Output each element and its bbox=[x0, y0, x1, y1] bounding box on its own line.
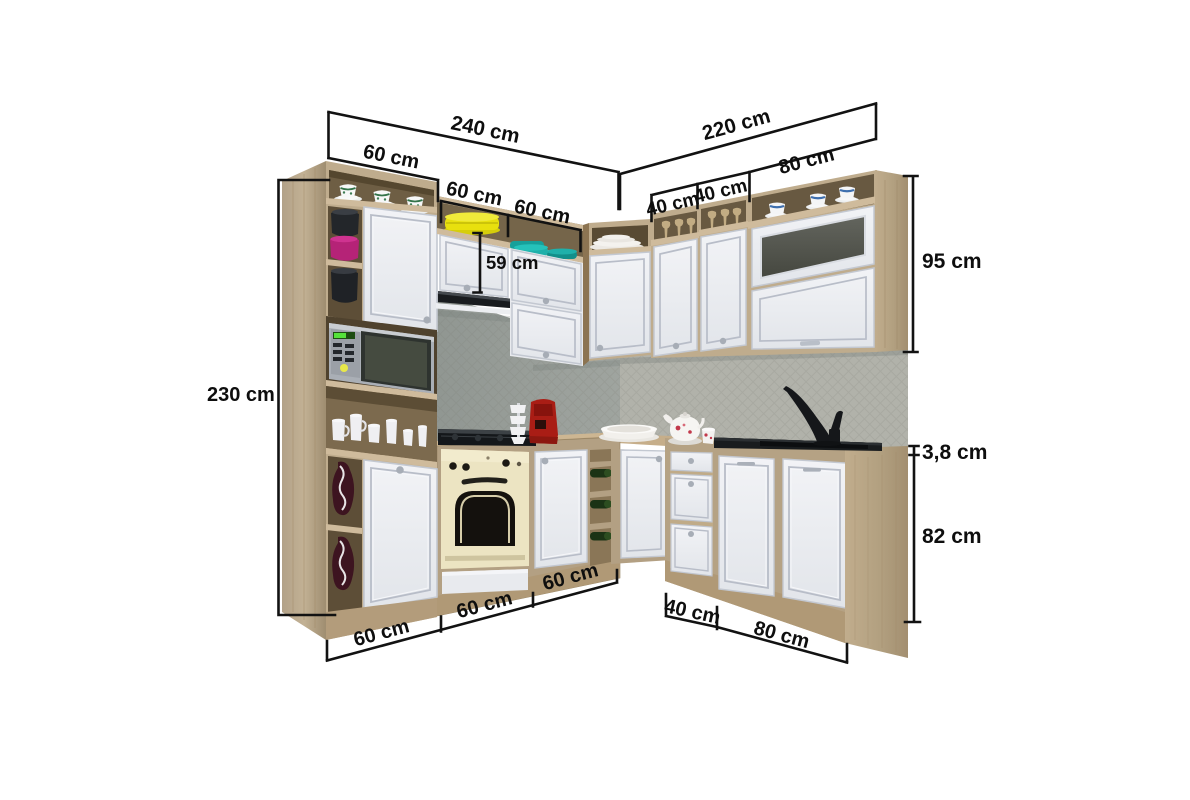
svg-text:3,8 cm: 3,8 cm bbox=[922, 441, 987, 464]
svg-text:59 cm: 59 cm bbox=[486, 252, 538, 273]
svg-text:95 cm: 95 cm bbox=[922, 250, 982, 273]
svg-text:230 cm: 230 cm bbox=[207, 384, 275, 406]
svg-text:82 cm: 82 cm bbox=[922, 525, 982, 548]
